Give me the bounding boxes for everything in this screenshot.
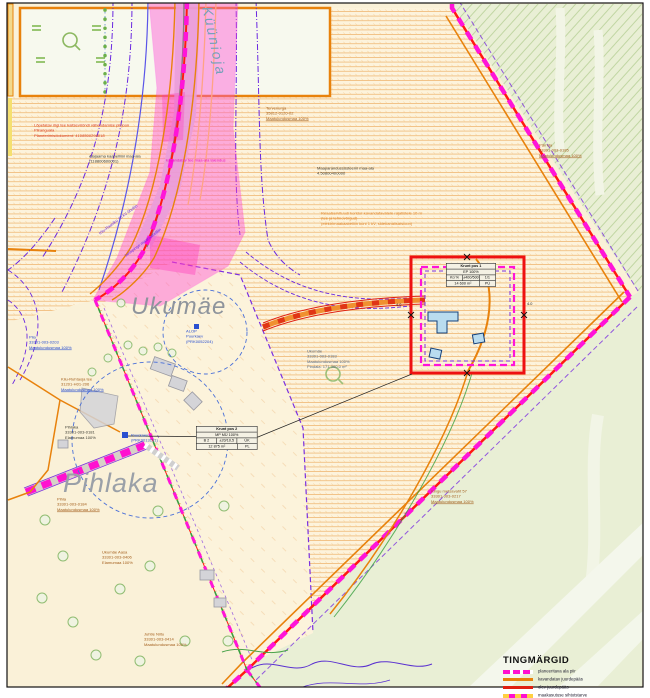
legend-title: TINGMÄRGID (503, 655, 617, 666)
table-cell: 1/1 (479, 275, 495, 280)
table-landuse: EP 100% (447, 269, 496, 274)
annotation-pihlaka-parcel: Pihlaka 33301-003-0181 Elamumaa 100% (65, 425, 96, 441)
annotation-tervenurga: Tervenurga 35812-0120-02 Maatulundusmaa … (266, 106, 309, 122)
annotation-line: Elamumaa 100% (102, 561, 133, 566)
table-cell: B 2 (197, 438, 217, 443)
legend-row: maakasutuse sihtotstarve (503, 693, 617, 698)
legend-row: olev juurdepääs (503, 685, 617, 690)
legend-swatch-existing-access-icon (503, 686, 533, 689)
annotation-pihla: Pihla 33301-003-0184 Maatulundusmaa 100% (57, 497, 100, 513)
annotation-line: Maatulundusmaa 100% (431, 500, 474, 505)
table-area: 12 875 m² (197, 444, 237, 449)
annotation-maaparandus: Maaparandussüsteemi maa-ala 4.5080040000… (317, 166, 374, 177)
place-label-ukumae: Ukumäe (131, 293, 226, 321)
dimension-label: 4.0 (527, 302, 532, 306)
parcel-table-pos1: Krunt pos 1 EP 100% Kü % ±400/500 1/1 14… (446, 263, 496, 287)
annotation-line: Maatulundusmaa 100% (144, 643, 187, 648)
parcel-table-pos2: Krunt pos 2 MP MÜ 100% B 2 ±20/10,5 ÜK 1… (196, 426, 257, 450)
annotation-line: Maatulundusmaa 100% (57, 508, 100, 513)
table-cell: PÜ (479, 281, 495, 286)
table-area: 14 600 m² (447, 281, 480, 286)
annotation-line: Maatulundusmaa 100% (29, 346, 72, 351)
annotation-parnda: Pärnda 33301-003-0185 Maatulundusmaa 100… (539, 143, 582, 159)
table-cell: ±400/500 (462, 275, 478, 280)
place-label-pihlaka: Pihlaka (63, 468, 159, 499)
table-cell: Kü % (447, 275, 463, 280)
annotation-juhtle: Juhtle Niitu 33301-003-0414 Maatulundusm… (144, 632, 187, 648)
annotation-line: (118800600001) (89, 159, 141, 164)
annotation-servituut: Reaalservituudi koridor kavandatavatele … (321, 211, 422, 227)
annotation-ukumae-parcel: Ukumäe 33301-003-0183 Maatulundusmaa 100… (307, 349, 350, 370)
table-title: Krunt pos 1 (447, 264, 496, 269)
table-cell: PL (237, 444, 257, 449)
legend-label: maakasutuse sihtotstarve (538, 693, 587, 697)
annotation-line: Maatulundusmaa 100% (61, 388, 104, 393)
legend-label: olev juurdepääs (538, 685, 569, 689)
detail-plan-map: Küünioja Ukumäe Pihlaka 4.0 4.0 Lõpetata… (0, 0, 650, 691)
dimension-label: 4.0 (396, 303, 401, 307)
table-landuse: MP MÜ 100% (197, 432, 257, 437)
annotation-line: Planeerimisdokument: 4108500298018 (34, 134, 129, 139)
annotation-line: kavandatav tee maa-ala laiendus (166, 158, 226, 163)
borehole-icon (122, 432, 128, 438)
legend-label: kavandatav juurdepääs (538, 677, 583, 681)
annotation-line: Maatulundusmaa 100% (539, 154, 582, 159)
table-title: Krunt pos 2 (197, 427, 257, 432)
annotation-road-restriction: Lõpetatav riigi tee kaitsevööndi vähenda… (34, 123, 129, 139)
legend-label: planeeritava ala piir (538, 669, 576, 673)
annotation-line: 4.50800400000 (317, 171, 374, 176)
legend-swatch-boundary-icon (503, 670, 533, 674)
annotation-alajaam: Alajaama kaabelliini maa-ala (1188006000… (89, 154, 141, 165)
legend-swatch-planned-access-icon (503, 678, 533, 681)
annotation-ukumae-aasa: Ukumäe Aasa 33301-003-0406 Elamumaa 100% (102, 550, 133, 566)
annotation-line: (PRK0013191) (131, 438, 158, 443)
annotation-line: Maatulundusmaa 100% (266, 117, 309, 122)
annotation-puurkaev1: Puurkaev (PRK0013191) (131, 433, 158, 444)
table-cell: ÜK (237, 438, 257, 443)
map-canvas (0, 0, 650, 691)
annotation-tee-laiendus: kavandatav tee maa-ala laiendus (166, 158, 226, 163)
annotation-line: (PRK0052204) (186, 340, 213, 345)
legend-swatch-landuse-icon (503, 694, 533, 698)
annotation-line: Pindala: 171 360,0 m² (307, 365, 350, 370)
annotation-puurkaev2: ALOP Puurkaev (PRK0052204) (186, 329, 213, 345)
annotation-piia: Piia 33301-003-0203 Maatulundusmaa 100% (29, 335, 72, 351)
annotation-kingu: Kingu metsavaht 57 33301-003-0217 Maatul… (431, 489, 474, 505)
table-cell: ±20/10,5 (216, 438, 236, 443)
legend: TINGMÄRGID planeeritava ala piir kavanda… (503, 655, 617, 698)
annotation-line: Elamumaa 100% (65, 436, 96, 441)
legend-row: kavandatav juurdepääs (503, 677, 617, 682)
annotation-line: (elektrimaakaabelliin kuni 1 kV, sidekan… (321, 222, 422, 227)
legend-row: planeeritava ala piir (503, 669, 617, 674)
annotation-kiiu-tee: Kiiu-Ruhtaoja tee 31201-H01-206 Maatulun… (61, 377, 104, 393)
